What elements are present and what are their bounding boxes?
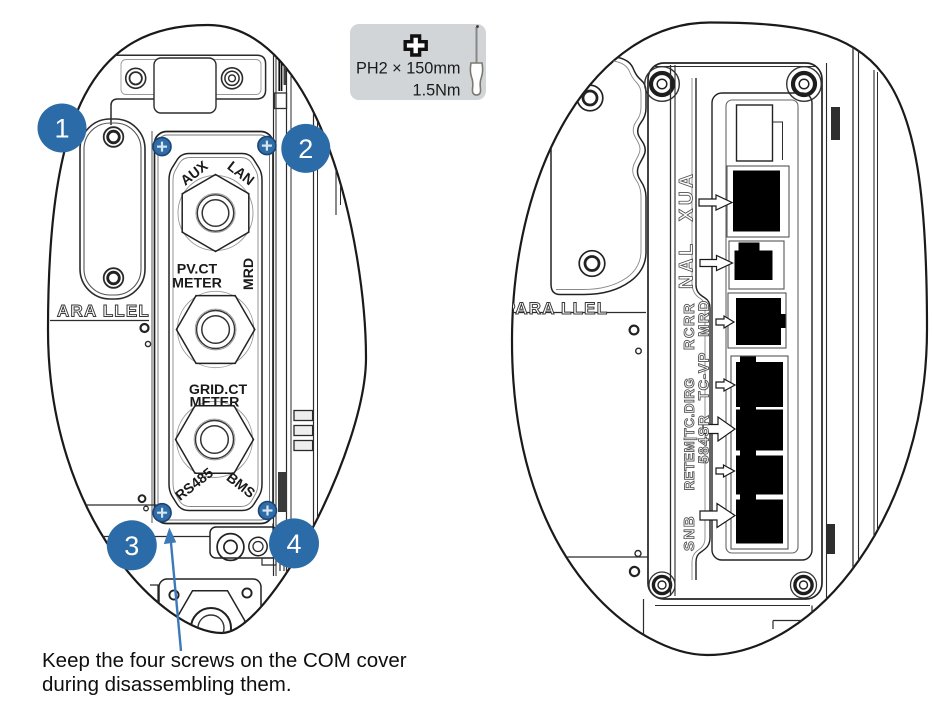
svg-text:RCRR: RCRR: [682, 302, 698, 350]
svg-text:2: 2: [298, 134, 313, 164]
svg-text:3: 3: [124, 531, 139, 561]
svg-text:NAL: NAL: [677, 241, 698, 289]
svg-text:MRD: MRD: [697, 299, 713, 337]
svg-text:during disassembling them.: during disassembling them.: [42, 673, 292, 696]
svg-text:METER: METER: [190, 395, 240, 411]
svg-text:ARA LLEL: ARA LLEL: [57, 302, 150, 321]
svg-text:Keep the four screws on the CO: Keep the four screws on the COM cover: [42, 649, 407, 672]
svg-text:MRD: MRD: [241, 258, 257, 290]
svg-text:584SR: 584SR: [697, 414, 713, 463]
svg-text:PH2 × 150mm: PH2 × 150mm: [356, 60, 461, 78]
svg-text:METER: METER: [172, 276, 222, 292]
svg-text:SNB: SNB: [681, 515, 698, 551]
svg-text:TC-VP: TC-VP: [697, 352, 713, 401]
svg-text:PARA LLEL: PARA LLEL: [504, 299, 608, 318]
svg-text:XUA: XUA: [677, 171, 698, 222]
svg-text:1: 1: [54, 114, 69, 144]
svg-text:4: 4: [286, 529, 301, 559]
svg-text:1.5Nm: 1.5Nm: [413, 81, 461, 99]
svg-text:RETEM|TC.DIRG: RETEM|TC.DIRG: [682, 377, 697, 490]
